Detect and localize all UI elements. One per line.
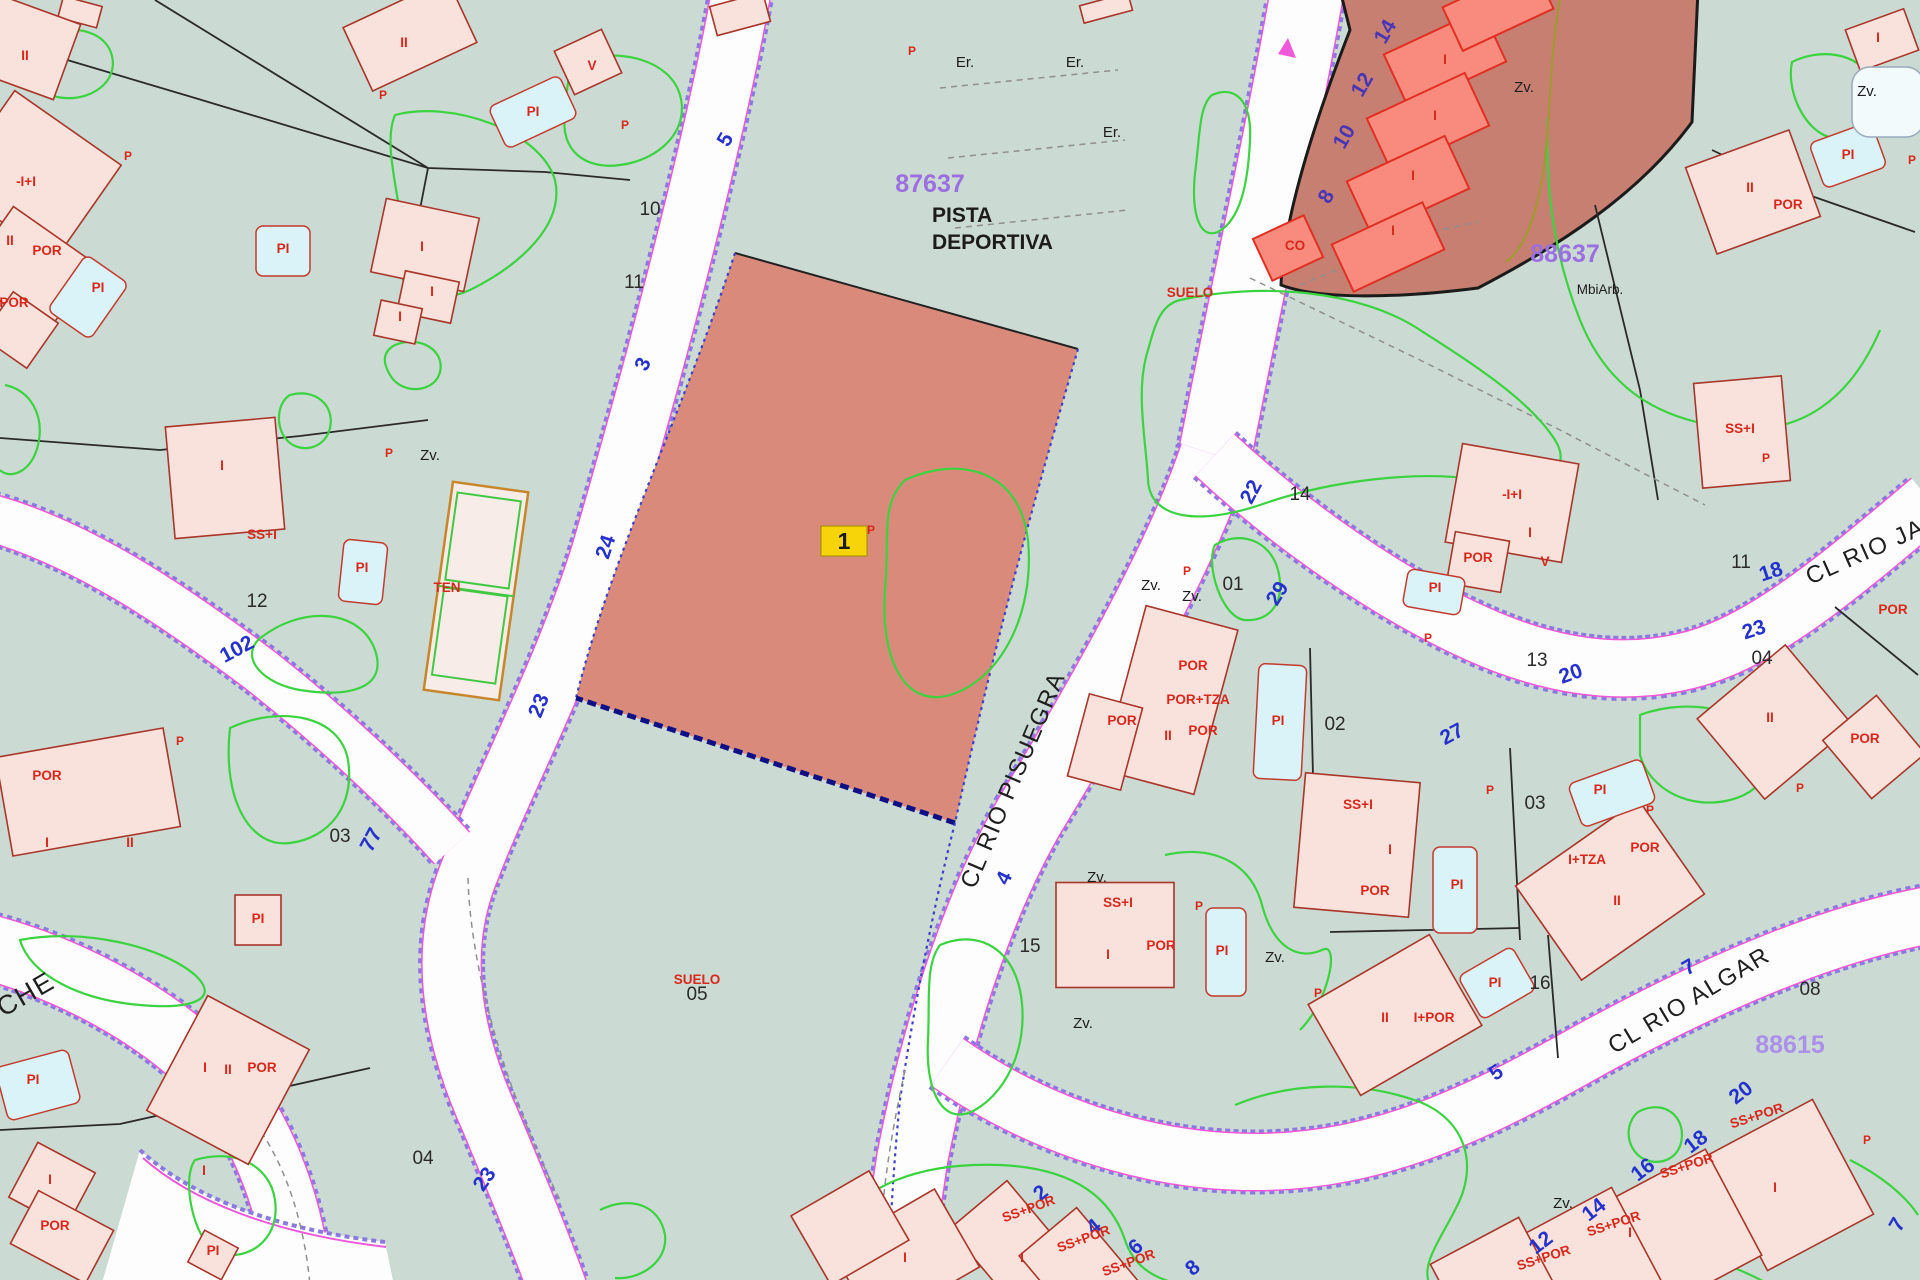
area-label: Zv. (1073, 1015, 1093, 1032)
area-label: PISTA (932, 204, 992, 227)
plot-number-label: 03 (329, 826, 350, 847)
plot-number-label: 13 (1526, 650, 1547, 671)
building-use-label: I (1433, 108, 1437, 123)
area-label: Zv. (1514, 79, 1534, 96)
plot-number-label: 11 (1731, 552, 1751, 573)
p-mark-label: P (1183, 564, 1191, 578)
building-use-label: PI (1489, 975, 1502, 990)
p-mark-label: P (1486, 783, 1494, 797)
building-use-label: I (398, 309, 402, 324)
building-use-label: TEN (434, 580, 461, 595)
building-use-label: I (1391, 223, 1395, 238)
building-use-label: II (1381, 1010, 1389, 1025)
building-use-label: I (1773, 1180, 1777, 1195)
area-label: Zv. (420, 447, 440, 464)
building-use-label: POR (1630, 840, 1660, 855)
area-label: Zv. (1857, 83, 1877, 100)
building-use-label: POR (40, 1218, 70, 1233)
area-label: Zv. (1182, 588, 1202, 605)
building-use-label: PI (92, 280, 105, 295)
building-use-label: PI (27, 1072, 40, 1087)
p-mark-label: P (1424, 631, 1432, 645)
building-use-label: SS+I (1725, 421, 1755, 436)
building-use-label: POR (247, 1060, 277, 1075)
building-use-label: II (400, 35, 408, 50)
building-use-label: POR (32, 243, 62, 258)
building-use-label: I+POR (1414, 1010, 1455, 1025)
area-label: MbiArb. (1577, 282, 1624, 297)
area-label: Er. (1066, 54, 1084, 71)
building-use-label: I+TZA (1568, 852, 1606, 867)
building-use-label: POR (1773, 197, 1803, 212)
plot-number-label: 12 (246, 591, 267, 612)
plot-number-label: 05 (686, 984, 707, 1005)
building (1294, 773, 1420, 918)
building-use-label: I (48, 1172, 52, 1187)
p-mark-label: P (1762, 451, 1770, 465)
plot-number-label: 04 (412, 1148, 434, 1169)
building-use-label: CO (1285, 238, 1305, 253)
parcel-code-label: 88637 (1530, 240, 1600, 268)
building-use-label: I (1411, 168, 1415, 183)
building-use-label: SUELO (1167, 285, 1214, 300)
plot-number-label: 01 (1222, 574, 1243, 595)
building-use-label: PI (1429, 580, 1442, 595)
building-use-label: I (420, 239, 424, 254)
building-use-label: -I+I (1502, 487, 1522, 502)
building-use-label: POR (1146, 938, 1176, 953)
building-use-label: PI (527, 104, 540, 119)
building-use-label: SS+I (247, 527, 277, 542)
p-mark-label: P (621, 118, 629, 132)
building-use-label: I (1388, 842, 1392, 857)
building-use-label: PI (1842, 147, 1855, 162)
building (165, 417, 284, 538)
p-mark-label: P (124, 149, 132, 163)
building-use-label: I (1106, 947, 1110, 962)
building-use-label: I (1876, 30, 1880, 45)
building-use-label: POR (1360, 883, 1390, 898)
plot-number-label: 15 (1019, 936, 1040, 957)
building-use-label: II (1164, 728, 1172, 743)
p-mark-label: P (1908, 153, 1916, 167)
plot-number-label: 10 (639, 199, 660, 220)
pool (1852, 67, 1920, 137)
building-use-label: POR (1188, 723, 1218, 738)
area-label: DEPORTIVA (932, 231, 1053, 254)
building-use-label: I (430, 284, 434, 299)
building-use-label: PI (277, 241, 290, 256)
p-mark-label: P (379, 88, 387, 102)
p-mark-label: P (1646, 803, 1654, 817)
building-use-label: POR (1850, 731, 1880, 746)
building-use-label: V (587, 58, 596, 73)
building-use-label: SUELO (674, 972, 721, 987)
building-use-label: II (126, 835, 134, 850)
building-use-label: SS+I (1343, 797, 1373, 812)
building-use-label: I (220, 458, 224, 473)
building-use-label: PI (1594, 782, 1607, 797)
area-label: Zv. (1141, 577, 1161, 594)
building-use-label: SS+I (1103, 895, 1133, 910)
building-use-label: POR (1463, 550, 1493, 565)
p-mark-label: P (1796, 781, 1804, 795)
building-use-label: II (224, 1062, 232, 1077)
building-use-label: I (45, 835, 49, 850)
parcel-code-label: 88615 (1755, 1031, 1825, 1059)
p-mark-label: P (176, 734, 184, 748)
building-use-label: PI (252, 911, 265, 926)
p-mark-label: P (867, 523, 875, 537)
building-use-label: I (1628, 1225, 1632, 1240)
selected-parcel-number: 1 (838, 528, 851, 554)
building-use-label: -I+I (16, 174, 36, 189)
area-label: Zv. (1087, 869, 1107, 886)
cadastral-map[interactable]: 1 CL RIO PISUEGRACL RIO JALONCL RIO ALGA… (0, 0, 1920, 1280)
building-use-label: PI (207, 1243, 220, 1258)
building-use-label: V (1540, 554, 1549, 569)
selected-parcel-marker[interactable]: 1 (821, 526, 867, 556)
building-use-label: PI (1216, 943, 1229, 958)
p-mark-label: P (1195, 899, 1203, 913)
plot-number-label: 02 (1324, 714, 1345, 735)
plot-number-label: 08 (1799, 979, 1820, 1000)
building-use-label: PI (1451, 877, 1464, 892)
building-use-label: II (1766, 710, 1774, 725)
p-mark-label: P (1863, 1133, 1871, 1147)
building-use-label: I (1528, 525, 1532, 540)
building-use-label: POR (0, 295, 29, 310)
plot-number-label: 04 (1751, 648, 1773, 669)
building-use-label: PI (1272, 713, 1285, 728)
area-label: Er. (1103, 124, 1121, 141)
p-mark-label: P (385, 446, 393, 460)
building-use-label: POR (32, 768, 62, 783)
building-use-label: I (202, 1163, 206, 1178)
plot-number-label: 14 (1289, 484, 1311, 505)
building-use-label: I (903, 1250, 907, 1265)
building-use-label: I (1020, 1250, 1024, 1265)
plot-number-label: 11 (624, 272, 644, 293)
plot-number-label: 03 (1524, 793, 1545, 814)
building-use-label: POR+TZA (1166, 692, 1230, 707)
p-mark-label: P (908, 44, 916, 58)
building-use-label: POR (1178, 658, 1208, 673)
building-use-label: II (1613, 893, 1621, 908)
building-use-label: II (21, 48, 29, 63)
building-use-label: II (6, 233, 14, 248)
building-use-label: PI (356, 560, 369, 575)
area-label: Er. (956, 54, 974, 71)
building-use-label: I (1443, 52, 1447, 67)
map-canvas: 1 CL RIO PISUEGRACL RIO JALONCL RIO ALGA… (0, 0, 1920, 1280)
building-use-label: I (203, 1060, 207, 1075)
plot-number-label: 16 (1529, 973, 1550, 994)
building-use-label: POR (1107, 713, 1137, 728)
area-label: Zv. (1265, 949, 1285, 966)
p-mark-label: P (1314, 986, 1322, 1000)
building-use-label: II (1746, 180, 1754, 195)
building-use-label: POR (1878, 602, 1908, 617)
parcel-code-label: 87637 (895, 170, 965, 198)
area-label: Zv. (1553, 1195, 1573, 1212)
